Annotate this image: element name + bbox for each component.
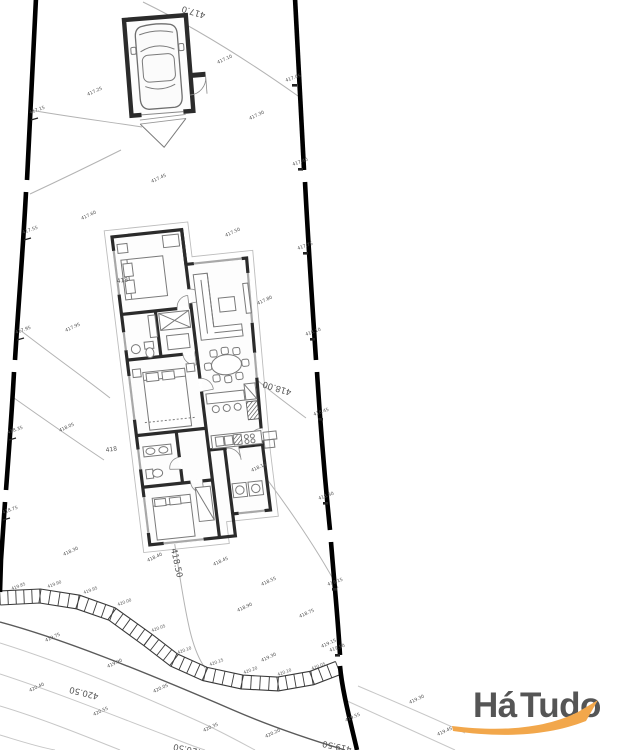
elevation-label: 420.40 xyxy=(28,682,45,694)
stove-hatch xyxy=(246,401,259,420)
slope-hatch-tick xyxy=(157,645,166,656)
sink xyxy=(224,436,233,446)
elevation-label: 418 xyxy=(105,445,117,454)
elevation-label: 420.55 xyxy=(92,706,109,718)
elevation-label: 418.05 xyxy=(58,422,75,434)
slope-hatch-tick xyxy=(24,590,25,604)
logo-ha: Há xyxy=(473,686,518,725)
nightstand xyxy=(186,363,195,372)
washbasin xyxy=(131,344,141,354)
sink xyxy=(215,437,224,447)
slope-hatch-tick xyxy=(285,676,287,690)
slope-hatch-tick xyxy=(150,640,159,651)
slope-hatch-tick xyxy=(122,619,130,630)
wall-stub xyxy=(190,72,205,78)
elevation-label: 417.45 xyxy=(150,173,167,185)
elevation-label: 419.75 xyxy=(44,632,61,644)
elevation-label: 418.00 xyxy=(262,378,293,396)
slope-hatch-tick xyxy=(179,657,185,670)
slope-hatch-tick xyxy=(187,661,193,674)
slope-hatch-tick xyxy=(32,589,33,603)
slope-hatch-tick xyxy=(163,650,172,661)
slope-hatch-tick xyxy=(76,595,81,608)
slope-hatch-tick xyxy=(318,668,323,681)
elevation-label: 417.75 xyxy=(297,241,314,252)
elevation-label: 420.20 xyxy=(264,728,281,740)
pillow xyxy=(169,497,181,505)
elevation-label: 419.30 xyxy=(260,652,277,664)
elevation-label: 419.45 xyxy=(436,726,453,738)
elevation-label: 418.30 xyxy=(62,546,79,558)
site-plan-image: 417.0418.00418.50420.50420.50419.50 4184… xyxy=(0,0,619,750)
entry-porch xyxy=(263,431,278,448)
elevation-label: 419.30 xyxy=(408,694,425,706)
cooktop-hatch xyxy=(233,434,242,445)
pillow xyxy=(123,263,134,277)
slope-hatch-tick xyxy=(58,592,60,606)
nightstand xyxy=(132,369,141,378)
stool xyxy=(212,405,220,413)
left-boundary-line xyxy=(0,0,38,592)
slope-hatch-tick xyxy=(84,598,89,611)
right-boundary-line xyxy=(292,0,357,750)
slope-band-labels: 419.85419.90419.95420.00420.05420.10420.… xyxy=(11,579,327,677)
entry-step xyxy=(263,431,277,440)
slope-hatch-tick xyxy=(48,591,50,605)
dryer xyxy=(248,481,264,496)
elevation-label: 420.20 xyxy=(243,665,259,675)
washbasin xyxy=(158,446,168,453)
slope-band-edge xyxy=(0,603,340,691)
slope-hatch-tick xyxy=(327,665,332,678)
slope-hatch-tick xyxy=(260,676,261,690)
slope-hatch-tick xyxy=(251,676,252,690)
slope-hatch-tick xyxy=(242,675,243,689)
elevation-label: 420.05 xyxy=(151,623,167,633)
slope-hatch-tick xyxy=(204,667,207,681)
pillow xyxy=(162,371,175,380)
slope-hatch-tick xyxy=(144,635,153,646)
slope-hatch-tick xyxy=(269,677,270,691)
elevation-label: 420.15 xyxy=(209,657,225,667)
coffee-table xyxy=(218,297,236,313)
slope-hatch-tick xyxy=(93,601,98,614)
elevation-label: 417.40 xyxy=(292,157,309,168)
slope-hatch-tick xyxy=(67,594,69,608)
elevation-label: 420.00 xyxy=(117,597,133,607)
washbasin xyxy=(146,448,156,455)
site-plan-svg: 417.0418.00418.50420.50420.50419.50 4184… xyxy=(0,0,619,750)
elevation-label: 418.45 xyxy=(212,556,229,568)
slope-hatch-tick xyxy=(8,591,9,605)
slope-hatch-tick xyxy=(213,669,216,683)
elevation-label: 418.50 xyxy=(168,548,184,579)
elevation-label: 418.55 xyxy=(260,576,277,588)
elevation-label: 418.90 xyxy=(236,602,253,614)
slope-hatch-tick xyxy=(194,664,200,677)
elevation-label: 420.50 xyxy=(68,684,99,701)
slope-hatch-tick xyxy=(101,604,106,617)
dresser xyxy=(166,334,190,350)
slope-hatch-tick xyxy=(137,629,145,640)
elevation-label: 417.60 xyxy=(80,210,97,222)
elevation-label: 417.10 xyxy=(216,54,233,66)
slope-hatch-tick xyxy=(115,614,123,625)
elevation-label: 420.50 xyxy=(172,741,203,750)
slope-hatch-tick xyxy=(171,654,177,667)
slope-hatch-tick xyxy=(16,590,17,604)
slope-hatch-tick xyxy=(294,674,296,688)
elevation-label: 418.40 xyxy=(146,552,163,564)
stool xyxy=(234,403,242,411)
elevation-label: 419.50 xyxy=(321,738,352,750)
elevation-label: 417.95 xyxy=(64,322,81,334)
elevation-label: 419.95 xyxy=(83,585,99,595)
slope-hatch-tick xyxy=(310,672,315,685)
elevation-label: 420.05 xyxy=(152,683,169,695)
dresser xyxy=(162,234,179,248)
garage xyxy=(124,14,211,150)
mirror-left xyxy=(131,47,137,54)
hatudo-logo: Há Tudo xyxy=(452,686,601,735)
slope-hatch-tick xyxy=(222,671,225,685)
slope-hatch-tick xyxy=(108,608,116,619)
stool xyxy=(223,404,231,412)
elevation-label: 418.75 xyxy=(298,608,315,620)
elevation-label: 417.80 xyxy=(256,295,273,307)
elevation-label: 417.30 xyxy=(248,110,265,122)
elevation-label: 417.25 xyxy=(86,86,103,98)
pillow xyxy=(146,372,159,381)
toilet xyxy=(152,469,163,478)
slope-hatch-tick xyxy=(130,624,138,635)
washing-machine xyxy=(232,482,248,497)
pillow xyxy=(154,498,166,506)
mirror-right xyxy=(179,43,185,50)
elevation-label: 420.35 xyxy=(202,722,219,734)
elevation-label: 420.10 xyxy=(177,645,193,655)
nightstand xyxy=(117,243,128,253)
slope-hatch-tick xyxy=(231,673,234,687)
slope-hatch-tick xyxy=(302,673,304,687)
elevation-label: 417.50 xyxy=(224,227,241,239)
elevation-label: 419.90 xyxy=(47,579,63,589)
